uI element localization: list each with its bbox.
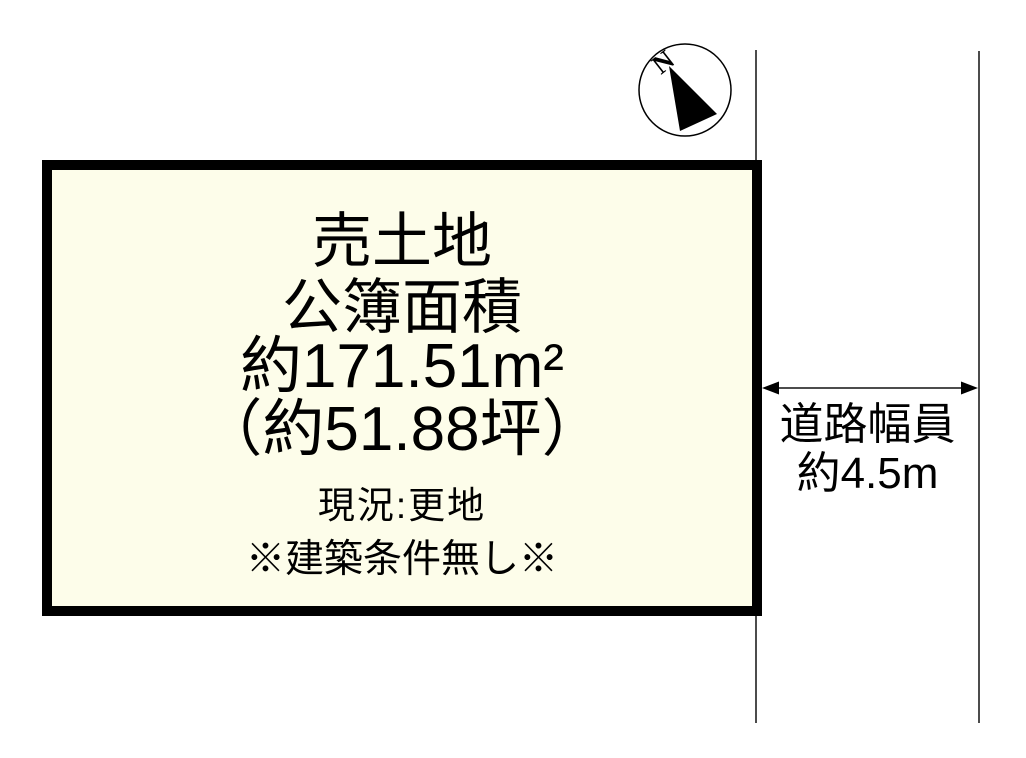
plot-label-registered-area: 公簿面積 — [42, 278, 762, 338]
plot-label-area-tsubo: （約51.88坪） — [42, 399, 762, 461]
arrowhead-left-icon — [762, 382, 779, 395]
plot-label-area-sqm: 約171.51m² — [42, 336, 762, 398]
road-width-annotation: 道路幅員 約4.5m — [756, 400, 979, 498]
arrowhead-right-icon — [961, 382, 978, 395]
plot-label-no-building-conditions: ※建築条件無し※ — [42, 539, 762, 581]
road-width-name: 道路幅員 — [756, 400, 979, 449]
plot-label-sale-land: 売土地 — [42, 212, 762, 272]
plot-label-current-status: 現況:更地 — [42, 486, 762, 526]
road-width-value: 約4.5m — [756, 449, 979, 498]
compass-icon: N — [639, 44, 731, 136]
road-width-arrow — [762, 382, 978, 395]
